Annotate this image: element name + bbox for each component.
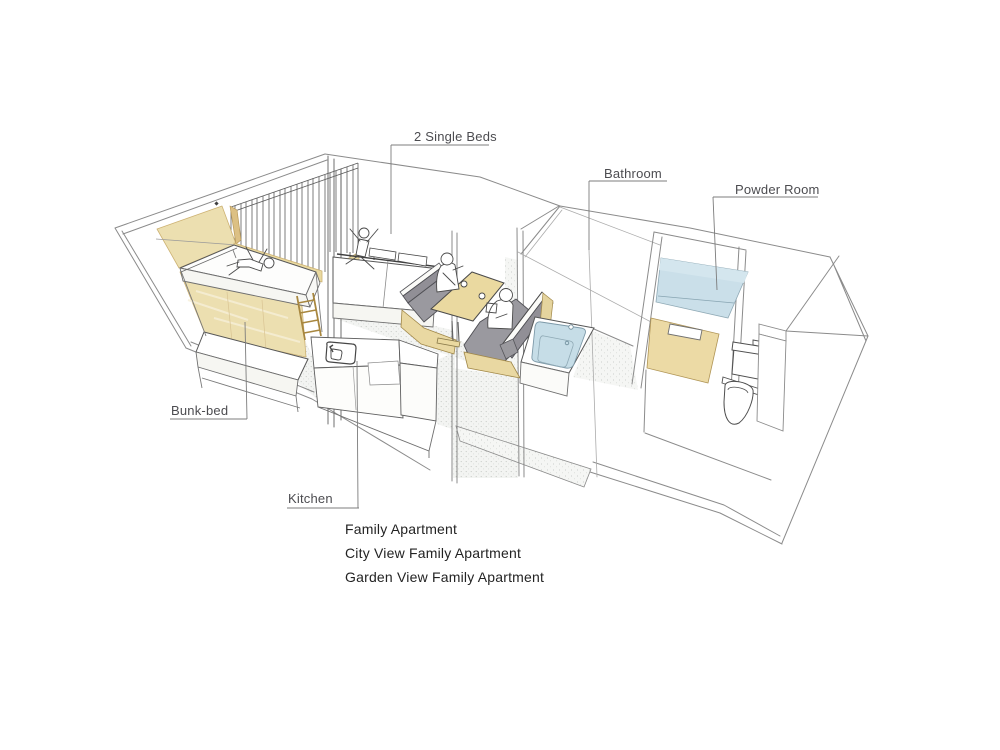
- svg-text:Family Apartment: Family Apartment: [345, 521, 457, 537]
- svg-text:Garden View Family Apartment: Garden View Family Apartment: [345, 569, 544, 585]
- svg-text:Bunk-bed: Bunk-bed: [171, 403, 228, 418]
- svg-text:Powder Room: Powder Room: [735, 182, 820, 197]
- svg-text:Kitchen: Kitchen: [288, 491, 333, 506]
- svg-text:Bathroom: Bathroom: [604, 166, 662, 181]
- svg-text:City View Family Apartment: City View Family Apartment: [345, 545, 521, 561]
- svg-text:2 Single Beds: 2 Single Beds: [414, 129, 497, 144]
